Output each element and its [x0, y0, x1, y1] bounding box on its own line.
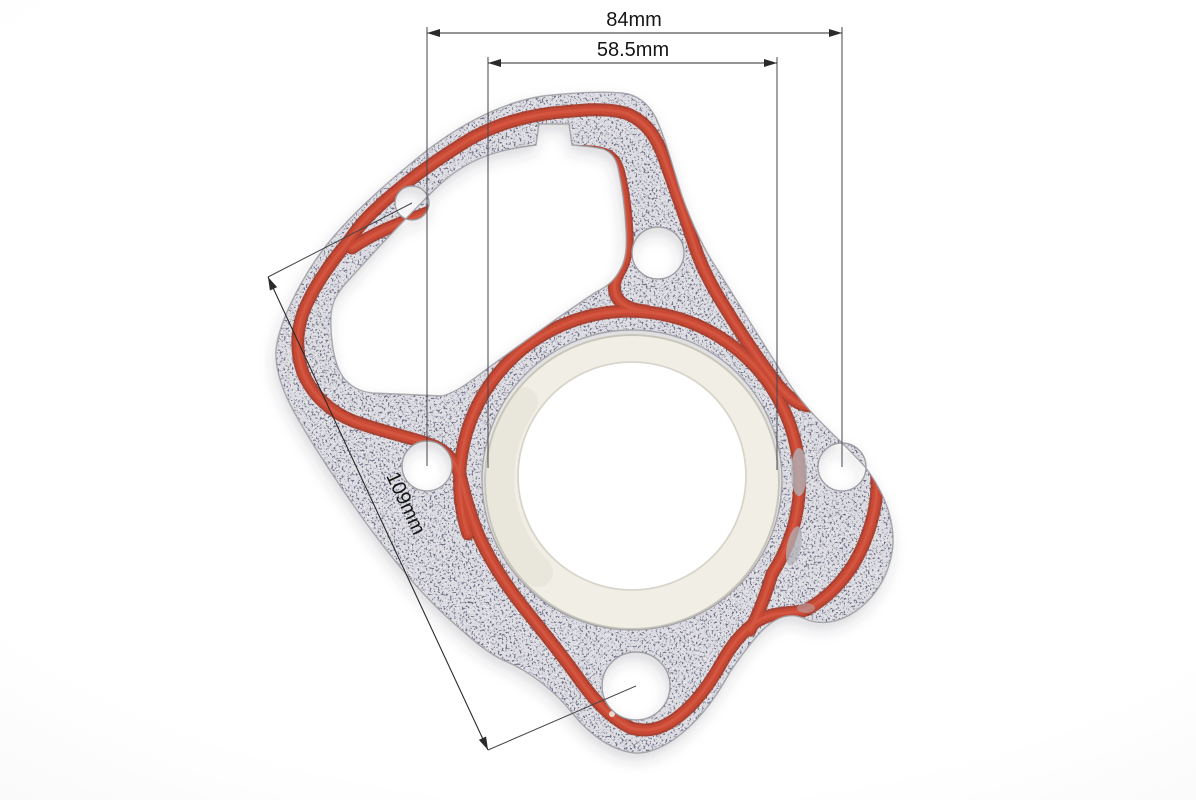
arrowhead-left — [488, 59, 501, 67]
bolt-hole-top — [632, 227, 684, 279]
gasket — [255, 65, 925, 775]
arrowhead-right — [764, 59, 777, 67]
arrowhead-bottom — [479, 737, 488, 751]
bore-opening — [519, 363, 745, 589]
dimension-label-58-5mm: 58.5mm — [597, 39, 669, 61]
dimension-label-84mm: 84mm — [606, 9, 662, 31]
bore-ring — [484, 334, 780, 630]
arrowhead-left — [427, 29, 440, 37]
arrowhead-right — [829, 29, 842, 37]
arrowhead-top — [268, 277, 277, 291]
product-photo: 84mm 58.5mm 109mm — [0, 0, 1196, 800]
gasket-illustration: 84mm 58.5mm 109mm — [0, 0, 1196, 800]
